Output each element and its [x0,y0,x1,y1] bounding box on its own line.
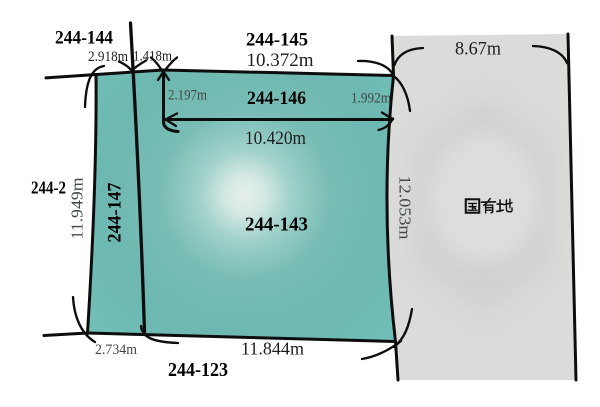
svg-text:1.992m: 1.992m [351,91,391,107]
svg-text:2.918m: 2.918m [88,49,128,65]
svg-text:244-146: 244-146 [247,88,306,109]
svg-text:10.420m: 10.420m [245,128,306,149]
svg-text:2.197m: 2.197m [168,88,207,104]
svg-text:2.734m: 2.734m [95,342,138,358]
svg-text:11.844m: 11.844m [241,339,304,359]
svg-text:1.418m: 1.418m [133,49,172,65]
svg-text:244-143: 244-143 [245,215,308,236]
svg-text:11.949m: 11.949m [68,178,87,240]
svg-text:244-144: 244-144 [55,28,113,49]
svg-text:244-123: 244-123 [168,360,228,381]
svg-text:244-147: 244-147 [105,182,126,242]
svg-text:244-2: 244-2 [31,178,66,198]
svg-text:244-145: 244-145 [246,30,308,51]
svg-text:10.372m: 10.372m [247,50,314,71]
svg-text:12.053m: 12.053m [396,176,415,240]
svg-text:8.67m: 8.67m [455,39,501,60]
